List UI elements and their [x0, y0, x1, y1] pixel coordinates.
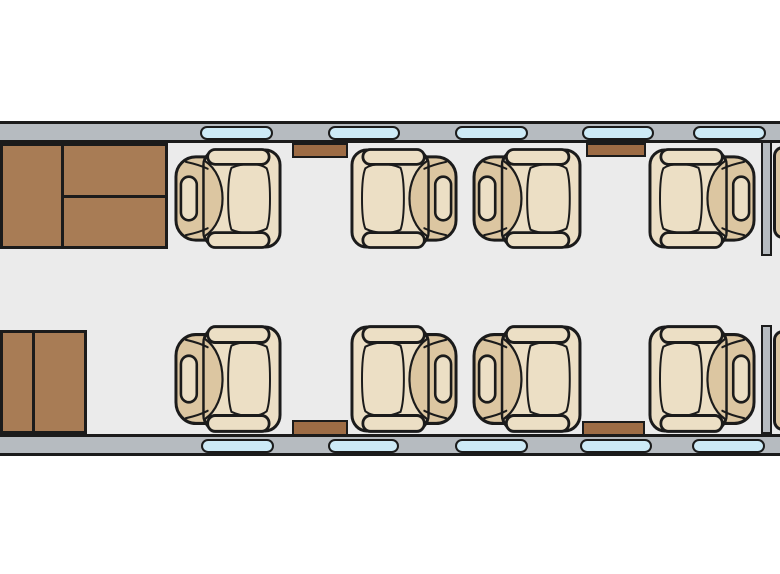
- seat-armrest-bottom: [208, 327, 269, 343]
- seat-armrest-top: [661, 149, 722, 164]
- aft-bulkhead-upper: [761, 141, 772, 256]
- seat-armrest-top: [506, 149, 569, 164]
- cabin-window-bottom-4: [580, 439, 652, 453]
- seat-headrest-pill: [733, 177, 749, 221]
- seat-headrest-pill: [733, 356, 749, 403]
- seat-headrest-pill: [435, 356, 451, 403]
- cabin-window-top-3: [455, 126, 528, 140]
- seat-armrest-top: [661, 416, 722, 432]
- aft-cabin-seat-fragment-upper: [773, 146, 780, 239]
- seat-armrest-top: [506, 416, 569, 432]
- side-table-top-forward: [292, 143, 348, 158]
- cabin-window-top-4: [582, 126, 654, 140]
- side-table-top-aft: [586, 143, 646, 157]
- seat-graphic: [172, 148, 283, 249]
- aft-bulkhead-lower: [761, 325, 772, 434]
- cabin-window-bottom-5: [692, 439, 765, 453]
- galley-cabinet-forward-divider: [62, 195, 168, 198]
- aft-cabin-seat-fragment-lower: [773, 330, 780, 431]
- seat-armrest-bottom: [506, 327, 569, 343]
- seat-armrest-bottom: [363, 233, 424, 248]
- seat-2[interactable]: [349, 148, 460, 249]
- seat-armrest-bottom: [661, 327, 722, 343]
- seat-3[interactable]: [470, 148, 583, 249]
- seat-armrest-top: [208, 149, 269, 164]
- seat-headrest-pill: [479, 356, 495, 403]
- seat-headrest-pill: [181, 356, 197, 403]
- seat-headrest-pill: [479, 177, 495, 221]
- seat-graphic: [470, 325, 583, 433]
- seat-armrest-top: [208, 416, 269, 432]
- aircraft-cabin-floor-plan: [0, 0, 780, 574]
- seat-armrest-top: [363, 416, 424, 432]
- galley-cabinet-forward: [0, 143, 168, 249]
- cabin-window-bottom-3: [455, 439, 528, 453]
- seat-8[interactable]: [647, 325, 758, 433]
- seat-armrest-bottom: [208, 233, 269, 248]
- seat-headrest-pill: [435, 177, 451, 221]
- seat-7[interactable]: [470, 325, 583, 433]
- seat-graphic: [647, 325, 758, 433]
- cabin-window-bottom-2: [328, 439, 399, 453]
- seat-headrest-pill: [181, 177, 197, 221]
- entry-cabinet-aft-divider: [32, 330, 35, 434]
- seat-graphic: [647, 148, 758, 249]
- cabin-window-top-2: [328, 126, 400, 140]
- seat-graphic: [349, 325, 460, 433]
- seat-graphic: [470, 148, 583, 249]
- seat-5[interactable]: [172, 325, 283, 433]
- seat-graphic: [349, 148, 460, 249]
- seat-graphic: [172, 325, 283, 433]
- seat-armrest-bottom: [363, 327, 424, 343]
- seat-armrest-top: [363, 149, 424, 164]
- seat-6[interactable]: [349, 325, 460, 433]
- entry-cabinet-aft: [0, 330, 87, 434]
- seat-4[interactable]: [647, 148, 758, 249]
- side-table-bottom-forward: [292, 420, 348, 436]
- cabin-window-top-1: [200, 126, 273, 140]
- seat-armrest-bottom: [661, 233, 722, 248]
- cabin-window-bottom-1: [201, 439, 274, 453]
- seat-1[interactable]: [172, 148, 283, 249]
- side-table-bottom-aft: [582, 421, 645, 436]
- seat-armrest-bottom: [506, 233, 569, 248]
- cabin-window-top-5: [693, 126, 766, 140]
